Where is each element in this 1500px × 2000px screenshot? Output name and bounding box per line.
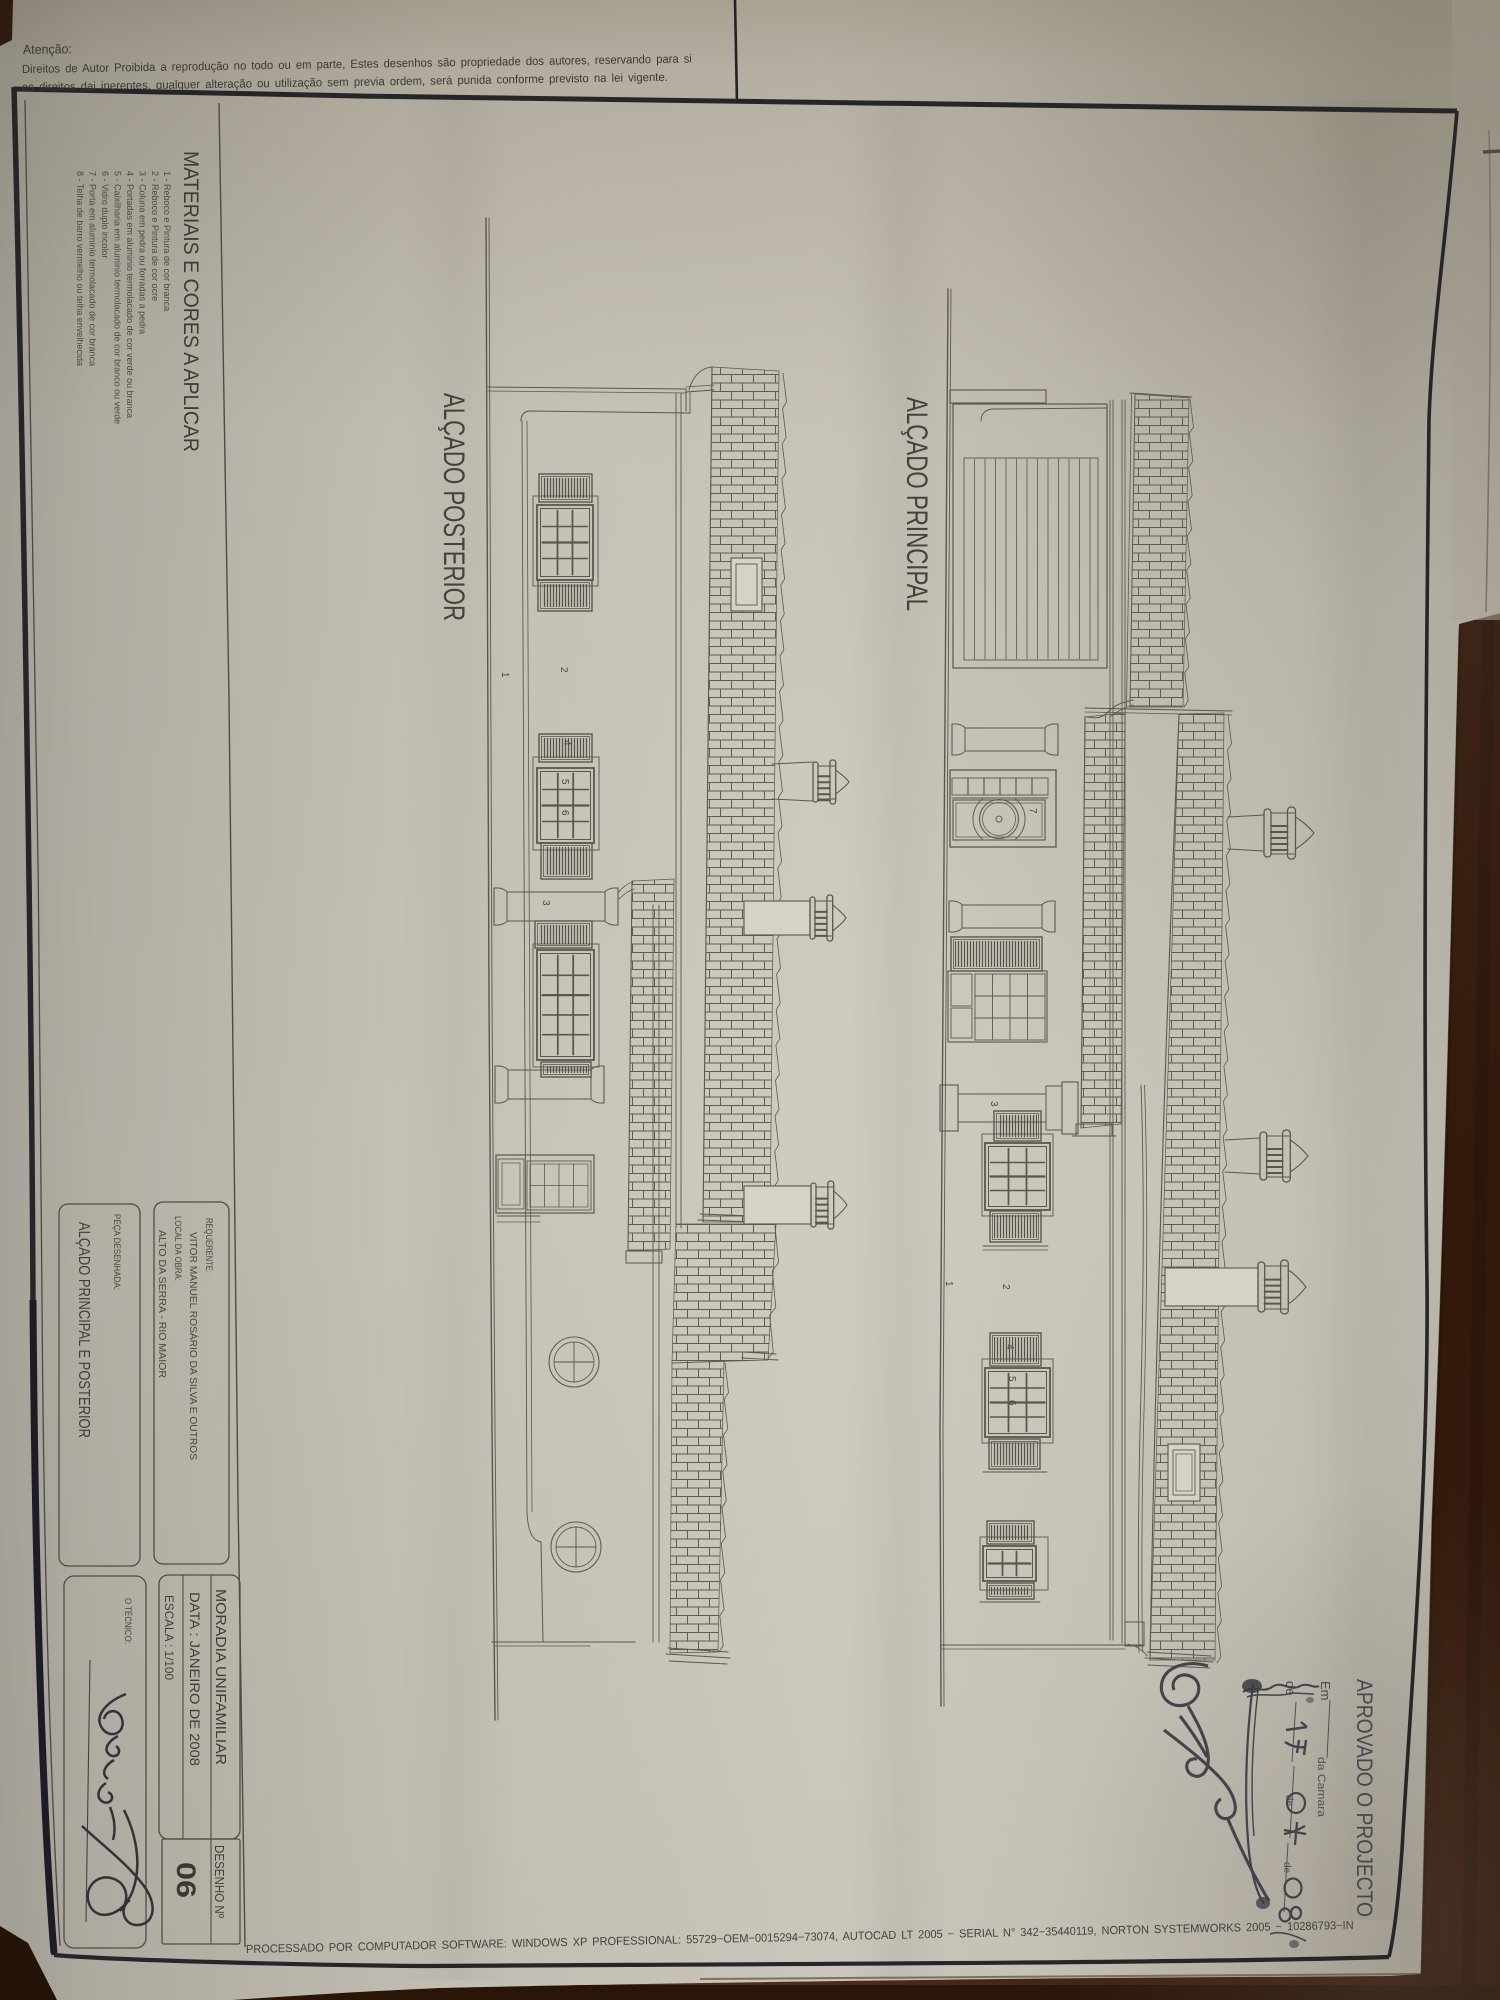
svg-text:MORADIA UNIFAMILIAR: MORADIA UNIFAMILIAR: [212, 1589, 229, 1765]
svg-text:5: 5: [1006, 1376, 1017, 1382]
svg-text:6: 6: [1006, 1400, 1017, 1406]
svg-text:3: 3: [988, 1101, 999, 1107]
svg-text:ALTO DA SERRA - RIO MAIOR: ALTO DA SERRA - RIO MAIOR: [156, 1230, 168, 1378]
svg-text:2 - Reboco e Pintura de cor oc: 2 - Reboco e Pintura de cor ocre: [150, 171, 160, 301]
svg-text:4: 4: [561, 740, 572, 746]
svg-text:DESENHO Nº: DESENHO Nº: [212, 1845, 226, 1918]
svg-text:Em: Em: [1318, 1681, 1333, 1701]
svg-text:7 - Porta em aluminio termolac: 7 - Porta em aluminio termolacado de cor…: [88, 171, 98, 366]
svg-text:5: 5: [559, 779, 570, 785]
svg-text:ALÇADO POSTERIOR: ALÇADO POSTERIOR: [437, 393, 470, 621]
svg-text:6 - Vidro duplo incolor: 6 - Vidro duplo incolor: [100, 171, 110, 258]
svg-text:DATA : JANEIRO DE 2008: DATA : JANEIRO DE 2008: [187, 1592, 202, 1766]
svg-text:APROVADO O PROJECTO: APROVADO O PROJECTO: [1352, 1679, 1377, 1917]
svg-text:LOCAL DA OBRA:: LOCAL DA OBRA:: [173, 1216, 183, 1281]
svg-text:2: 2: [1000, 1284, 1011, 1290]
svg-text:8 - Telha de barro vermelho ou: 8 - Telha de barro vermelho ou telha env…: [75, 171, 85, 366]
svg-text:Atenção:: Atenção:: [23, 41, 72, 57]
svg-text:da Camara: da Camara: [1315, 1757, 1327, 1818]
svg-text:2: 2: [558, 667, 569, 673]
svg-text:7: 7: [1027, 808, 1038, 814]
svg-text:PEÇA DESENHADA:: PEÇA DESENHADA:: [112, 1214, 122, 1290]
svg-text:ALÇADO PRINCIPAL E POSTERIOR: ALÇADO PRINCIPAL E POSTERIOR: [75, 1222, 92, 1438]
svg-text:06: 06: [171, 1862, 201, 1898]
svg-text:1: 1: [499, 672, 510, 678]
svg-text:VITOR MANUEL ROSÁRIO DA SILVA: VITOR MANUEL ROSÁRIO DA SILVA E OUTROS: [187, 1232, 200, 1460]
svg-text:ESCALA : 1/100: ESCALA : 1/100: [162, 1595, 176, 1680]
svg-text:REQUERENTE:: REQUERENTE:: [204, 1218, 214, 1273]
svg-text:O TÉCNICO:: O TÉCNICO:: [123, 1598, 133, 1644]
svg-text:4: 4: [1004, 1344, 1015, 1350]
svg-text:1: 1: [943, 1281, 954, 1287]
svg-text:3 - Coluna em pedra ou forrada: 3 - Coluna em pedra ou forradas a pedra: [138, 171, 148, 334]
svg-text:MATERIAIS E CORES A APLICAR: MATERIAIS E CORES A APLICAR: [179, 151, 202, 452]
svg-text:3: 3: [540, 900, 551, 906]
svg-text:5 - Caixilharia em aluminio te: 5 - Caixilharia em aluminio termolacado …: [113, 171, 123, 424]
svg-text:4 - Portadas em aluminio termo: 4 - Portadas em aluminio termolacado de …: [125, 171, 135, 418]
svg-text:6: 6: [559, 810, 570, 816]
svg-text:1 - Reboco e Pintura de cor br: 1 - Reboco e Pintura de cor branca: [162, 171, 172, 311]
svg-text:ALÇADO PRINCIPAL: ALÇADO PRINCIPAL: [900, 397, 933, 611]
